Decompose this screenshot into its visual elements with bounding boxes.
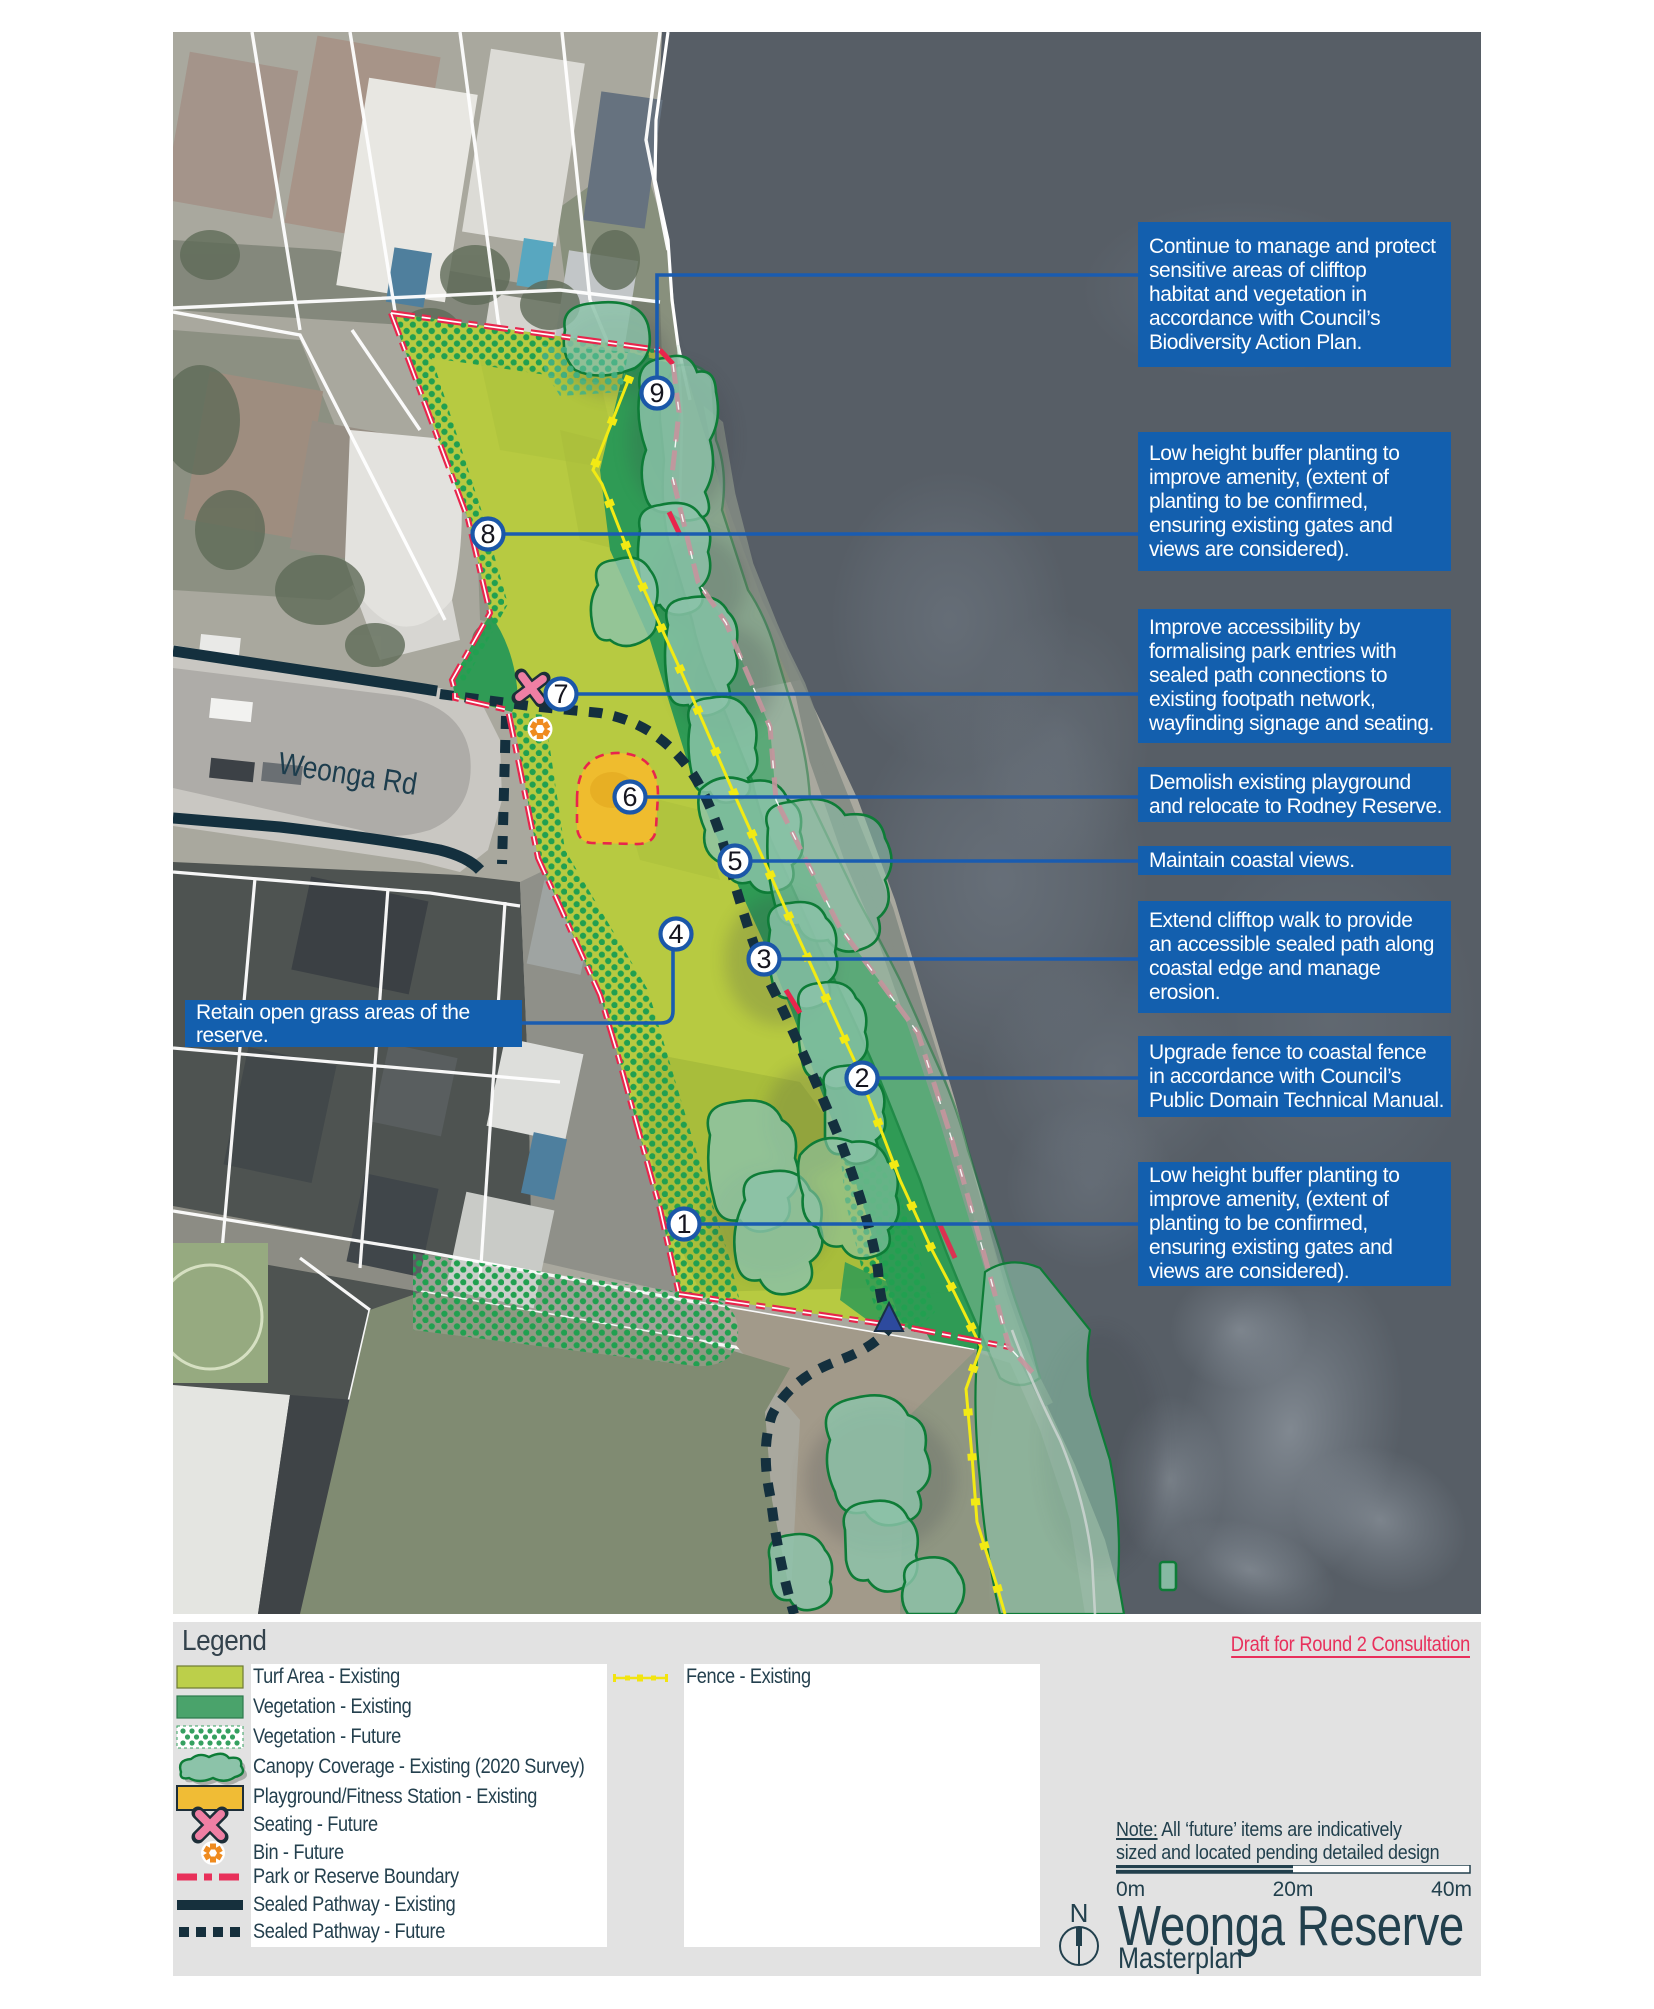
svg-text:9: 9 [649,378,664,408]
svg-text:4: 4 [668,919,683,949]
svg-text:N: N [1070,1900,1089,1928]
svg-text:1: 1 [676,1209,691,1239]
svg-text:5: 5 [727,846,742,876]
svg-text:8: 8 [480,519,495,549]
svg-text:3: 3 [756,944,771,974]
svg-text:6: 6 [622,782,637,812]
svg-text:2: 2 [854,1063,869,1093]
svg-text:7: 7 [553,679,568,709]
